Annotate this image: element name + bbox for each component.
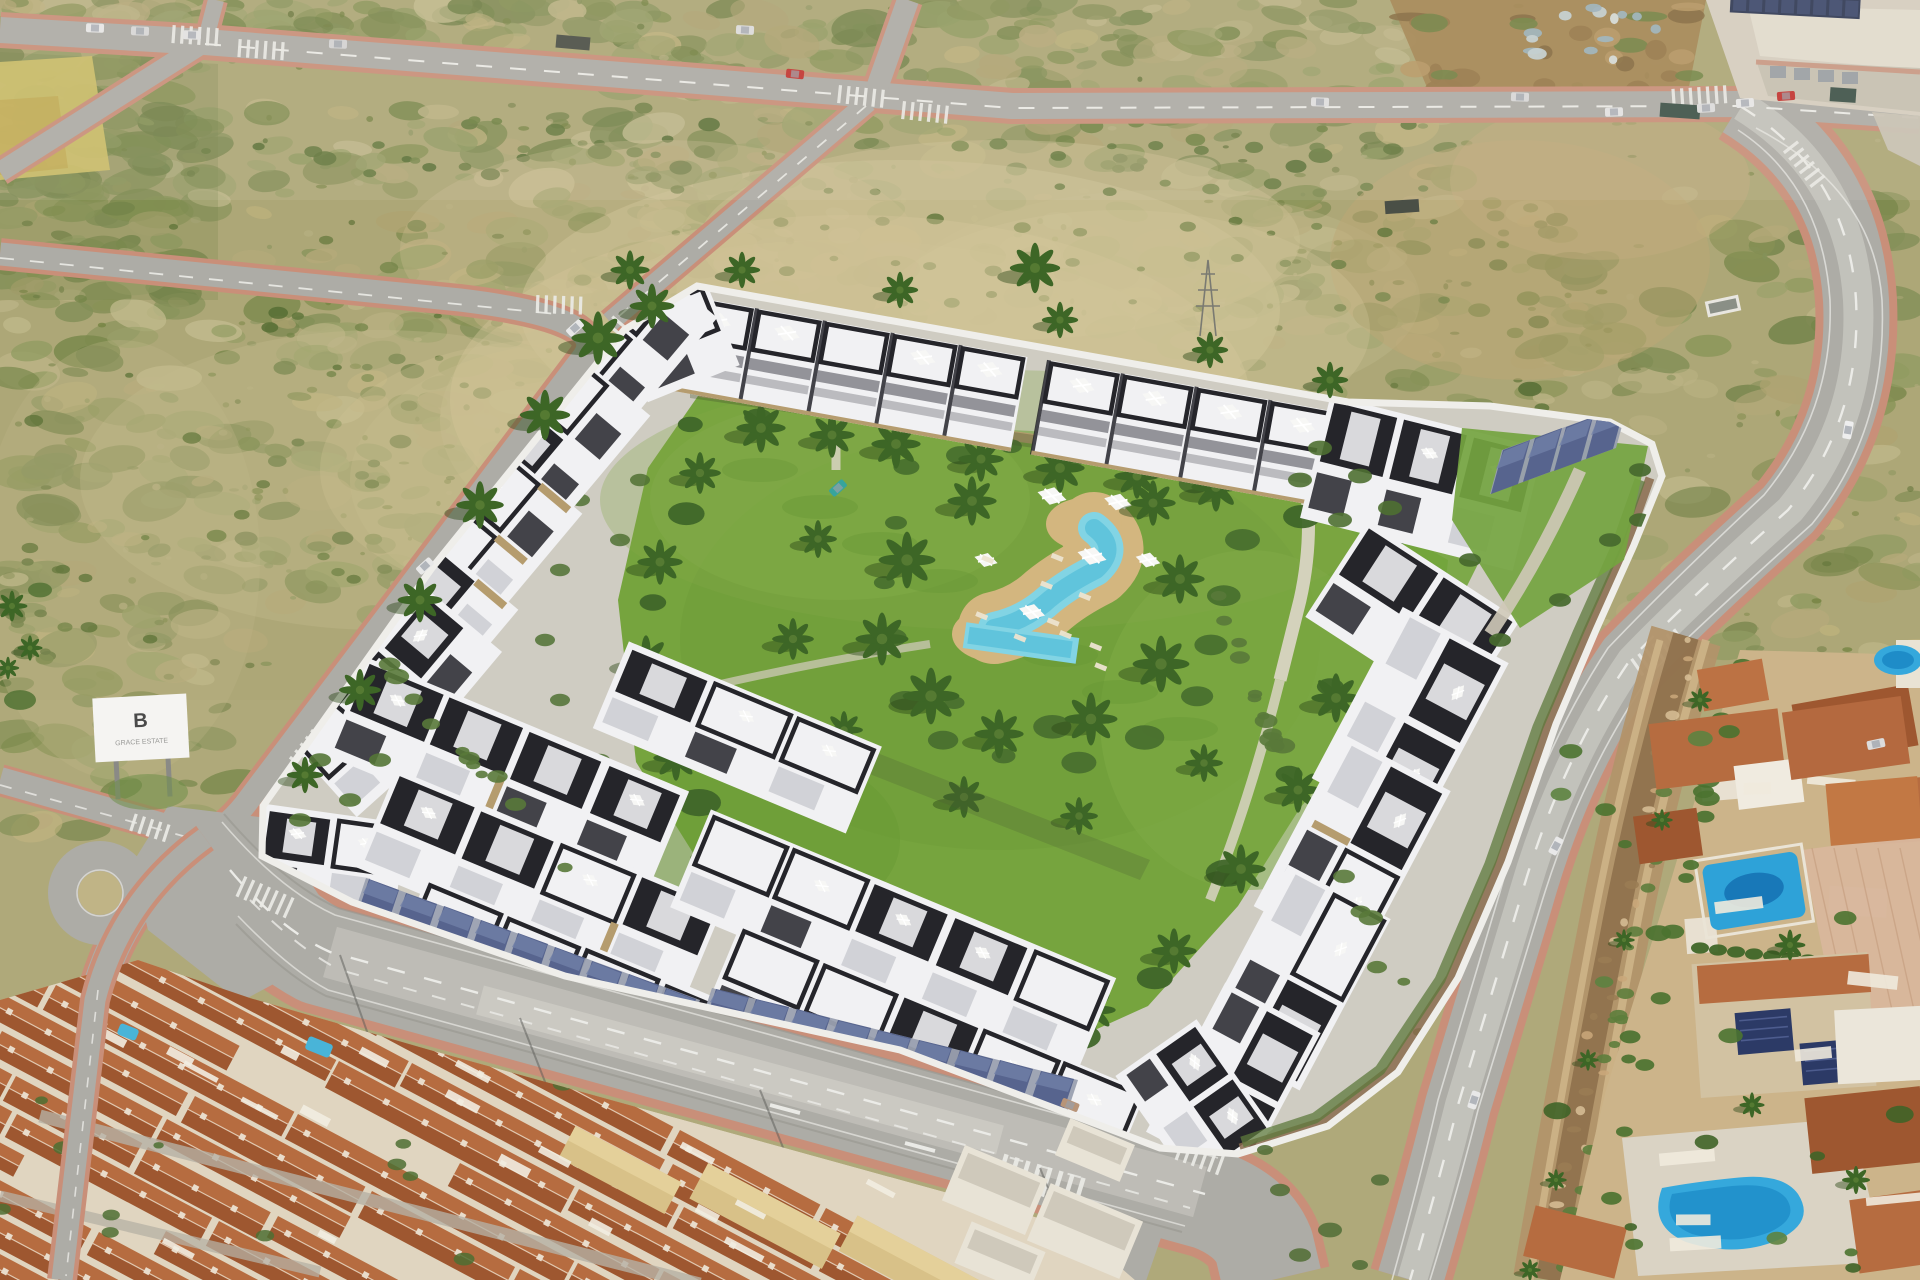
svg-text:B: B	[133, 710, 149, 733]
